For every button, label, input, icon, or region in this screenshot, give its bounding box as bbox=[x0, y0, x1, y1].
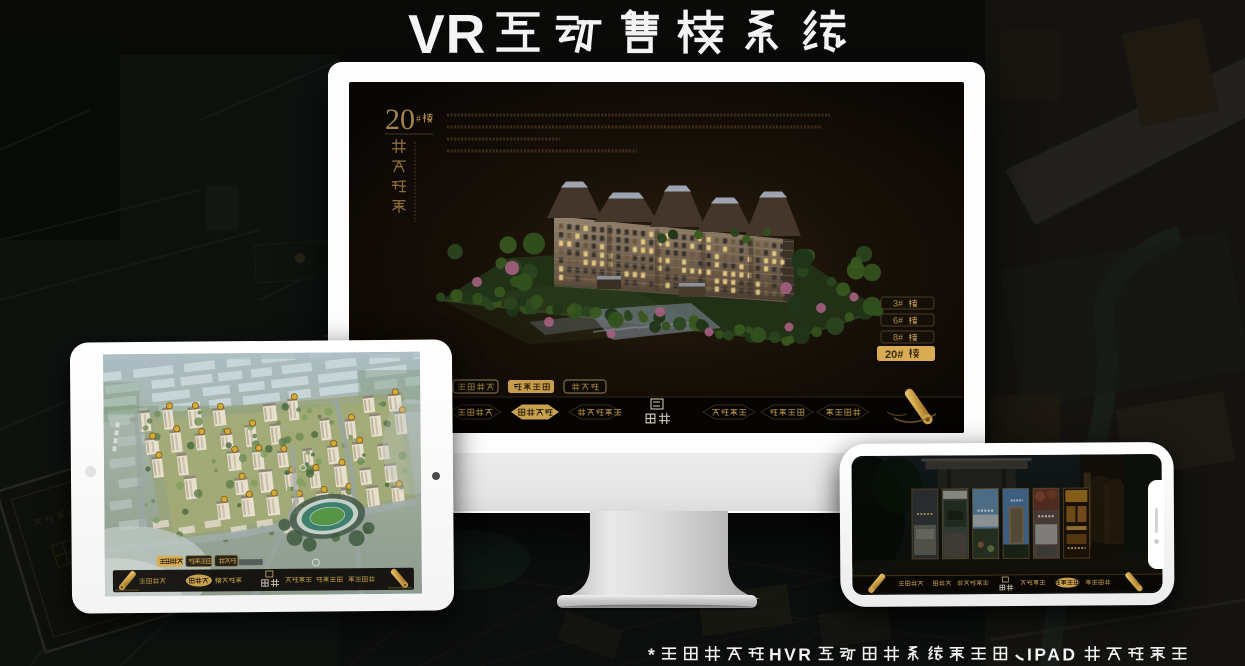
svg-text:20: 20 bbox=[385, 103, 415, 136]
svg-text:#: # bbox=[416, 114, 421, 125]
svg-text:HVR: HVR bbox=[769, 645, 813, 665]
svg-text:6#: 6# bbox=[893, 316, 903, 326]
svg-text:8#: 8# bbox=[893, 333, 903, 343]
svg-text:*: * bbox=[648, 645, 657, 665]
svg-text:20#: 20# bbox=[885, 349, 903, 361]
svg-text:IPAD: IPAD bbox=[1027, 645, 1078, 665]
svg-text:3#: 3# bbox=[893, 299, 903, 309]
